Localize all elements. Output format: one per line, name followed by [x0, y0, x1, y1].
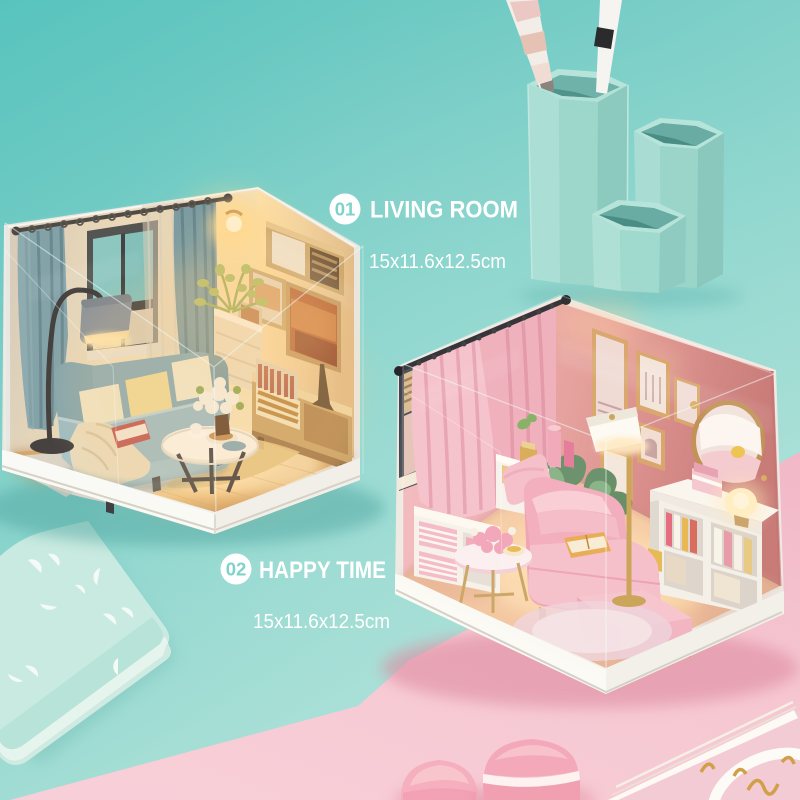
svg-text:02: 02 [226, 559, 247, 580]
svg-text:LIVING ROOM: LIVING ROOM [370, 197, 518, 224]
svg-text:15x11.6x12.5cm: 15x11.6x12.5cm [253, 610, 390, 633]
svg-text:01: 01 [335, 199, 356, 220]
svg-text:15x11.6x12.5cm: 15x11.6x12.5cm [369, 250, 506, 273]
svg-text:HAPPY TIME: HAPPY TIME [259, 557, 386, 584]
